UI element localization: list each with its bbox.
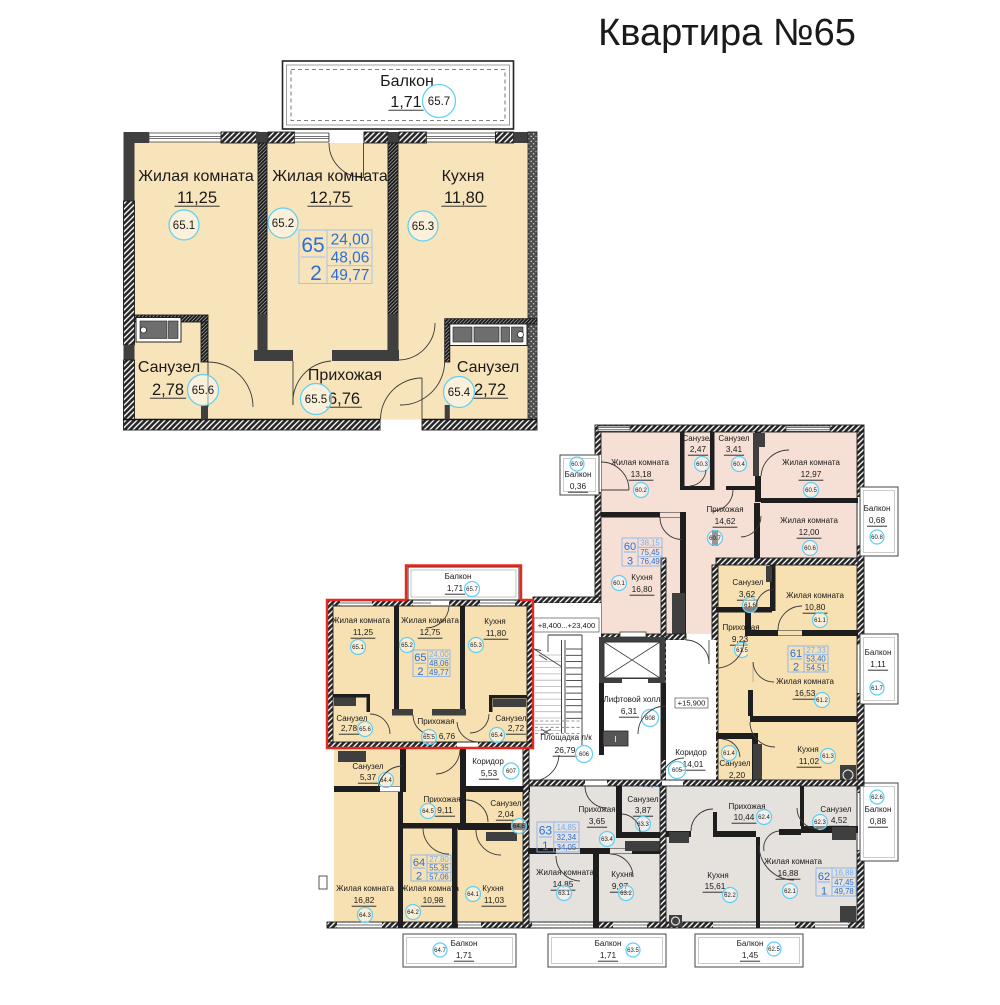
svg-text:Кухня: Кухня — [797, 745, 818, 754]
svg-text:1,11: 1,11 — [870, 659, 886, 669]
svg-text:61.2: 61.2 — [816, 698, 828, 704]
svg-text:61.1: 61.1 — [814, 618, 826, 624]
svg-text:48,06: 48,06 — [429, 659, 449, 668]
svg-text:62.2: 62.2 — [724, 893, 736, 899]
svg-text:Кухня: Кухня — [482, 884, 503, 893]
svg-text:55,35: 55,35 — [429, 864, 449, 873]
svg-text:+15,900: +15,900 — [678, 699, 706, 708]
svg-text:11,80: 11,80 — [486, 628, 507, 638]
svg-text:608: 608 — [645, 716, 656, 722]
svg-text:Коридор: Коридор — [472, 757, 504, 766]
svg-text:Санузел: Санузел — [820, 805, 851, 814]
svg-text:65.4: 65.4 — [491, 733, 503, 739]
svg-text:63.5: 63.5 — [627, 948, 639, 954]
svg-text:2,20: 2,20 — [729, 770, 746, 780]
svg-text:65: 65 — [414, 652, 426, 664]
svg-text:63.1: 63.1 — [558, 891, 570, 897]
svg-text:64.2: 64.2 — [407, 910, 419, 916]
svg-text:6,76: 6,76 — [439, 731, 456, 741]
svg-text:10,80: 10,80 — [805, 602, 826, 612]
svg-text:16,88: 16,88 — [778, 868, 799, 878]
svg-text:2,47: 2,47 — [690, 444, 707, 454]
svg-text:2: 2 — [416, 870, 422, 882]
svg-text:65.1: 65.1 — [173, 220, 195, 232]
svg-text:10,98: 10,98 — [423, 895, 444, 905]
svg-text:Жилая комната: Жилая комната — [401, 616, 459, 625]
svg-text:Балкон: Балкон — [380, 73, 434, 90]
svg-text:2: 2 — [793, 661, 799, 673]
svg-text:63: 63 — [539, 824, 553, 838]
svg-text:26,79: 26,79 — [555, 745, 576, 755]
svg-text:I: I — [614, 735, 616, 744]
svg-text:53,40: 53,40 — [806, 655, 826, 664]
svg-text:Прихожая: Прихожая — [728, 802, 765, 811]
svg-text:0,36: 0,36 — [570, 481, 587, 491]
svg-text:2,78: 2,78 — [341, 723, 358, 733]
svg-text:65: 65 — [301, 234, 324, 257]
svg-text:64.7: 64.7 — [434, 948, 446, 954]
svg-text:14,85: 14,85 — [557, 823, 577, 832]
svg-text:5,37: 5,37 — [360, 772, 377, 782]
svg-text:Жилая комната: Жилая комната — [780, 516, 838, 525]
svg-text:12,75: 12,75 — [420, 627, 441, 637]
svg-text:Балкон: Балкон — [595, 939, 622, 948]
svg-text:Кухня: Кухня — [611, 870, 632, 879]
svg-text:4,52: 4,52 — [831, 815, 848, 825]
svg-text:61: 61 — [790, 648, 802, 660]
svg-text:1: 1 — [821, 885, 827, 897]
svg-text:Кухня: Кухня — [442, 168, 485, 185]
svg-text:Прихожая: Прихожая — [417, 717, 454, 726]
svg-text:Санузел: Санузел — [495, 714, 526, 723]
svg-text:1,71: 1,71 — [456, 950, 473, 960]
svg-text:11,80: 11,80 — [444, 189, 484, 207]
svg-text:Санузел: Санузел — [732, 578, 763, 587]
svg-text:Жилая комната: Жилая комната — [782, 458, 840, 467]
svg-text:60.9: 60.9 — [571, 462, 583, 468]
svg-text:Балкон: Балкон — [865, 805, 892, 814]
svg-text:61.3: 61.3 — [822, 754, 834, 760]
svg-text:2,72: 2,72 — [474, 381, 506, 399]
svg-text:10,44: 10,44 — [734, 812, 755, 822]
svg-text:62.3: 62.3 — [814, 820, 826, 826]
svg-text:6,31: 6,31 — [621, 706, 638, 716]
svg-text:15,61: 15,61 — [705, 881, 726, 891]
svg-text:Санузел: Санузел — [719, 759, 750, 768]
svg-text:16,82: 16,82 — [354, 895, 375, 905]
svg-text:60.3: 60.3 — [696, 462, 708, 468]
svg-text:60.2: 60.2 — [635, 488, 647, 494]
svg-text:54,51: 54,51 — [806, 663, 826, 672]
svg-text:49,77: 49,77 — [429, 668, 449, 677]
svg-text:65.2: 65.2 — [401, 643, 413, 649]
svg-text:Прихожая: Прихожая — [578, 805, 615, 814]
svg-text:24,00: 24,00 — [429, 650, 449, 659]
svg-text:63.2: 63.2 — [620, 891, 632, 897]
svg-text:64.3: 64.3 — [359, 913, 371, 919]
svg-text:60.6: 60.6 — [804, 546, 816, 552]
svg-text:65.3: 65.3 — [412, 221, 434, 233]
svg-text:12,00: 12,00 — [799, 527, 820, 537]
svg-text:1,45: 1,45 — [742, 950, 759, 960]
svg-text:0,68: 0,68 — [869, 515, 886, 525]
svg-text:65.2: 65.2 — [272, 218, 294, 230]
svg-text:Жилая комната: Жилая комната — [336, 884, 394, 893]
svg-text:32,34: 32,34 — [557, 833, 577, 842]
svg-text:65.1: 65.1 — [352, 645, 364, 651]
svg-text:62.4: 62.4 — [758, 815, 770, 821]
svg-text:605: 605 — [672, 768, 683, 774]
svg-text:Балкон: Балкон — [445, 572, 472, 581]
svg-text:6,76: 6,76 — [328, 390, 360, 408]
svg-text:2,72: 2,72 — [508, 723, 525, 733]
svg-text:65.7: 65.7 — [428, 96, 450, 108]
svg-text:60.8: 60.8 — [871, 535, 883, 541]
svg-text:16,80: 16,80 — [632, 584, 653, 594]
svg-text:61.6: 61.6 — [744, 603, 756, 609]
svg-text:64.1: 64.1 — [467, 892, 479, 898]
svg-text:11,02: 11,02 — [799, 756, 820, 766]
svg-text:75,45: 75,45 — [640, 548, 660, 557]
svg-text:Жилая комната: Жилая комната — [138, 168, 254, 185]
svg-text:+8,400...+23,400: +8,400...+23,400 — [538, 621, 595, 630]
svg-text:1,71: 1,71 — [447, 583, 464, 593]
svg-text:60: 60 — [624, 541, 636, 553]
svg-text:64.4: 64.4 — [380, 778, 392, 784]
svg-text:3,41: 3,41 — [726, 444, 743, 454]
svg-text:Санузел: Санузел — [682, 434, 713, 443]
svg-text:65.6: 65.6 — [192, 385, 214, 397]
svg-text:60.4: 60.4 — [733, 462, 745, 468]
svg-text:Санузел: Санузел — [490, 799, 521, 808]
svg-text:62.5: 62.5 — [768, 947, 780, 953]
svg-text:Кухня: Кухня — [631, 573, 652, 582]
svg-text:606: 606 — [579, 752, 590, 758]
svg-text:Жилая комната: Жилая комната — [611, 458, 669, 467]
svg-text:Санузел: Санузел — [718, 434, 749, 443]
svg-text:Прихожая: Прихожая — [722, 623, 759, 632]
svg-text:47,45: 47,45 — [834, 878, 854, 887]
svg-text:60.5: 60.5 — [805, 488, 817, 494]
svg-text:57,06: 57,06 — [429, 872, 449, 881]
svg-text:63.4: 63.4 — [601, 837, 613, 843]
svg-text:2: 2 — [310, 262, 322, 285]
svg-text:11,25: 11,25 — [177, 189, 217, 207]
svg-text:607: 607 — [506, 769, 517, 775]
svg-text:11,03: 11,03 — [484, 895, 505, 905]
svg-text:49,78: 49,78 — [834, 887, 854, 896]
svg-text:3,87: 3,87 — [635, 805, 652, 815]
svg-text:Санузел: Санузел — [627, 795, 658, 804]
svg-text:Кухня: Кухня — [707, 871, 728, 880]
svg-text:14,62: 14,62 — [715, 516, 736, 526]
svg-text:34,05: 34,05 — [557, 843, 577, 852]
svg-text:Жилая комната: Жилая комната — [272, 168, 388, 185]
svg-text:11,25: 11,25 — [353, 627, 374, 637]
svg-text:Жилая комната: Жилая комната — [764, 857, 822, 866]
svg-text:Санузел: Санузел — [138, 359, 200, 376]
svg-text:Жилая комната: Жилая комната — [401, 884, 459, 893]
svg-text:2,04: 2,04 — [498, 809, 515, 819]
svg-text:Балкон: Балкон — [865, 648, 892, 657]
svg-text:Прихожая: Прихожая — [308, 367, 382, 384]
svg-text:24,00: 24,00 — [331, 232, 370, 249]
svg-text:2: 2 — [417, 666, 423, 678]
svg-text:5,53: 5,53 — [481, 768, 498, 778]
svg-text:62.6: 62.6 — [871, 795, 883, 801]
svg-text:Кухня: Кухня — [484, 617, 505, 626]
svg-text:14,01: 14,01 — [683, 759, 704, 769]
svg-text:Жилая комната: Жилая комната — [776, 677, 834, 686]
svg-text:16,88: 16,88 — [834, 869, 854, 878]
svg-text:48,06: 48,06 — [331, 249, 370, 266]
svg-text:Площадка л/к: Площадка л/к — [540, 733, 592, 742]
svg-text:Санузел: Санузел — [457, 359, 519, 376]
svg-text:64.6: 64.6 — [513, 824, 525, 830]
svg-text:0,88: 0,88 — [870, 816, 887, 826]
svg-text:60.1: 60.1 — [613, 581, 625, 587]
svg-text:64: 64 — [413, 857, 425, 869]
svg-text:9,11: 9,11 — [437, 805, 453, 815]
svg-text:65.5: 65.5 — [305, 394, 327, 406]
svg-text:64.5: 64.5 — [422, 809, 434, 815]
svg-text:12,75: 12,75 — [309, 189, 350, 207]
svg-text:3,65: 3,65 — [589, 816, 606, 826]
svg-text:Квартира №65: Квартира №65 — [598, 12, 856, 54]
svg-text:Балкон: Балкон — [451, 939, 478, 948]
svg-text:Санузел: Санузел — [352, 762, 383, 771]
svg-text:Лифтовой холл: Лифтовой холл — [604, 695, 661, 704]
svg-text:16,53: 16,53 — [795, 688, 816, 698]
svg-text:Жилая комната: Жилая комната — [786, 591, 844, 600]
svg-text:62.1: 62.1 — [784, 889, 796, 895]
svg-text:Балкон: Балкон — [864, 504, 891, 513]
svg-text:62: 62 — [818, 871, 830, 883]
svg-text:65.6: 65.6 — [359, 727, 371, 733]
svg-text:65.5: 65.5 — [423, 735, 435, 741]
svg-text:49,77: 49,77 — [331, 267, 370, 284]
svg-text:65.3: 65.3 — [470, 643, 482, 649]
svg-text:61.4: 61.4 — [723, 751, 735, 757]
svg-text:3: 3 — [627, 555, 633, 567]
svg-text:Коридор: Коридор — [675, 748, 707, 757]
svg-text:76,49: 76,49 — [640, 557, 660, 566]
svg-text:12,97: 12,97 — [801, 469, 822, 479]
svg-text:Жилая комната: Жилая комната — [332, 616, 390, 625]
svg-text:13,18: 13,18 — [631, 469, 652, 479]
svg-text:65.7: 65.7 — [466, 587, 478, 593]
svg-text:1,71: 1,71 — [390, 94, 421, 111]
svg-text:61.7: 61.7 — [871, 686, 883, 692]
svg-text:65.4: 65.4 — [448, 387, 471, 399]
svg-text:Балкон: Балкон — [737, 939, 764, 948]
svg-text:2,78: 2,78 — [152, 381, 184, 399]
svg-text:60.7: 60.7 — [709, 536, 721, 542]
svg-text:1,71: 1,71 — [600, 950, 617, 960]
svg-text:1: 1 — [542, 839, 549, 853]
svg-text:Прихожая: Прихожая — [423, 795, 460, 804]
svg-text:38,15: 38,15 — [640, 539, 660, 548]
